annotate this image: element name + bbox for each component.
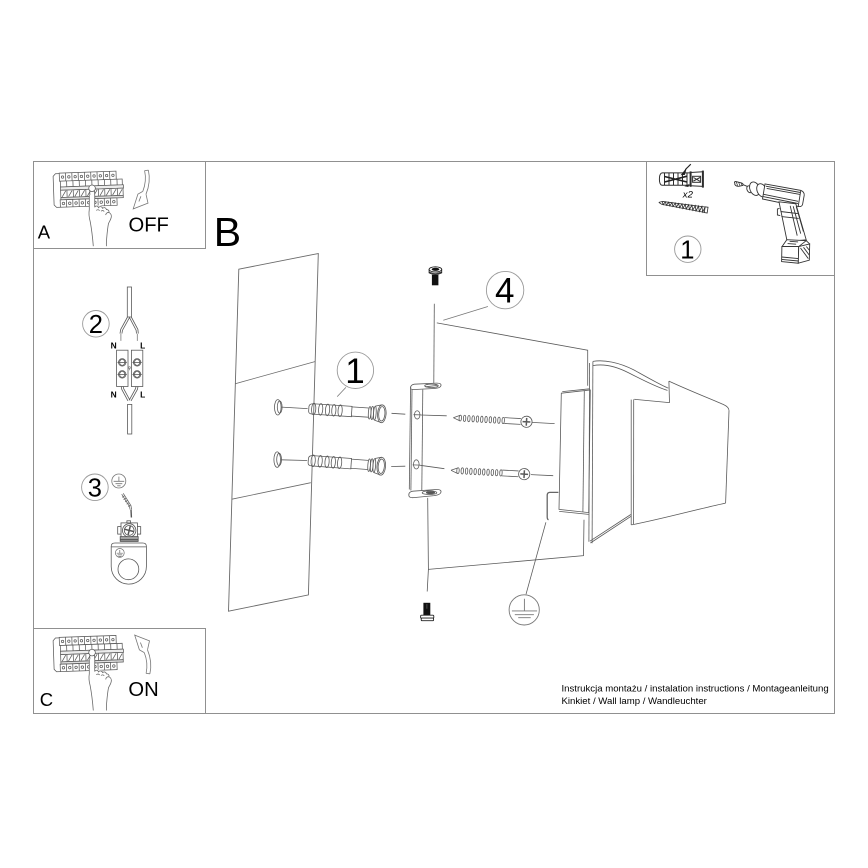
svg-text:ON: ON [128, 679, 158, 701]
svg-text:2: 2 [89, 311, 103, 339]
svg-text:A: A [38, 221, 51, 242]
svg-text:L: L [140, 389, 145, 399]
svg-text:x2: x2 [682, 190, 694, 201]
svg-text:3: 3 [88, 474, 102, 502]
svg-text:Kinkiet / Wall lamp / Wandleuc: Kinkiet / Wall lamp / Wandleuchter [562, 696, 708, 707]
svg-text:1: 1 [680, 236, 694, 264]
svg-text:OFF: OFF [129, 215, 169, 237]
svg-text:L: L [140, 340, 145, 350]
svg-text:Instrukcja montażu / instalati: Instrukcja montażu / instalation instruc… [562, 683, 829, 694]
svg-text:1: 1 [345, 352, 364, 391]
svg-text:N: N [111, 389, 117, 399]
svg-text:B: B [214, 209, 241, 255]
svg-text:N: N [111, 340, 117, 350]
svg-text:C: C [40, 689, 53, 710]
svg-text:4: 4 [495, 272, 514, 311]
